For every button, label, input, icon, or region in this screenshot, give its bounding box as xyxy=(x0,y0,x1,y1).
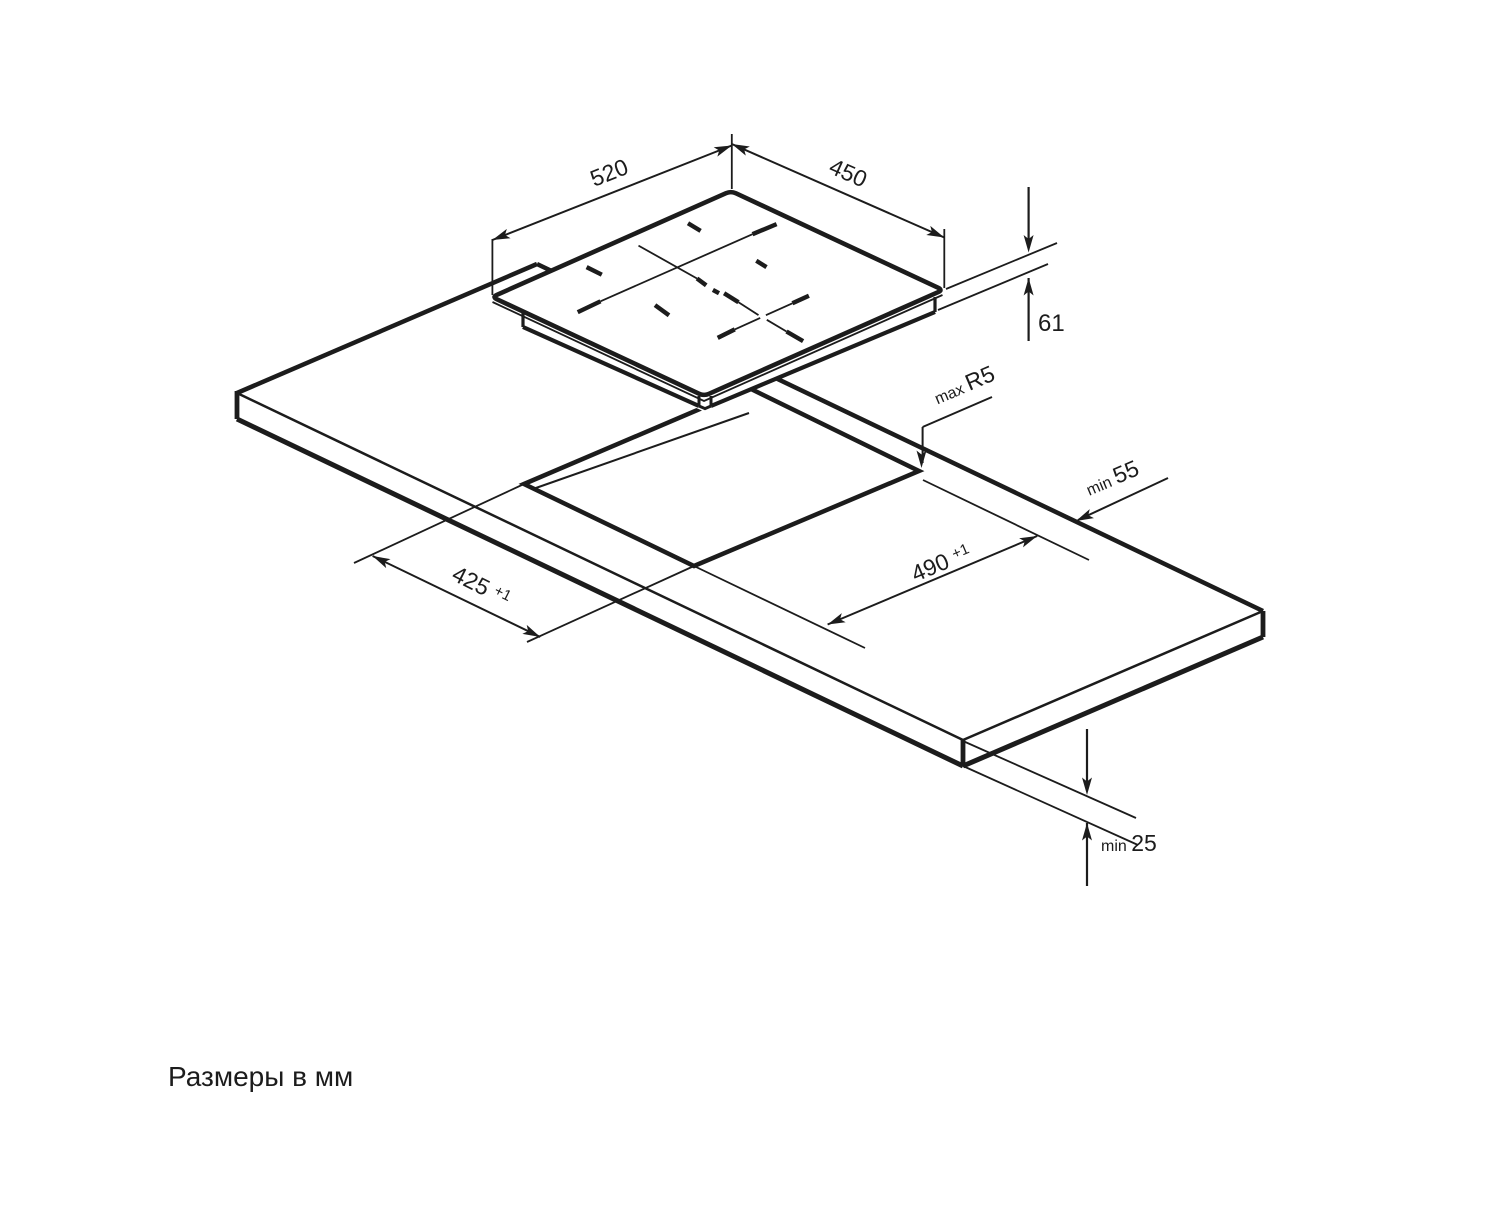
svg-text:61: 61 xyxy=(1038,310,1065,337)
svg-text:Размеры в мм: Размеры в мм xyxy=(168,1061,353,1092)
